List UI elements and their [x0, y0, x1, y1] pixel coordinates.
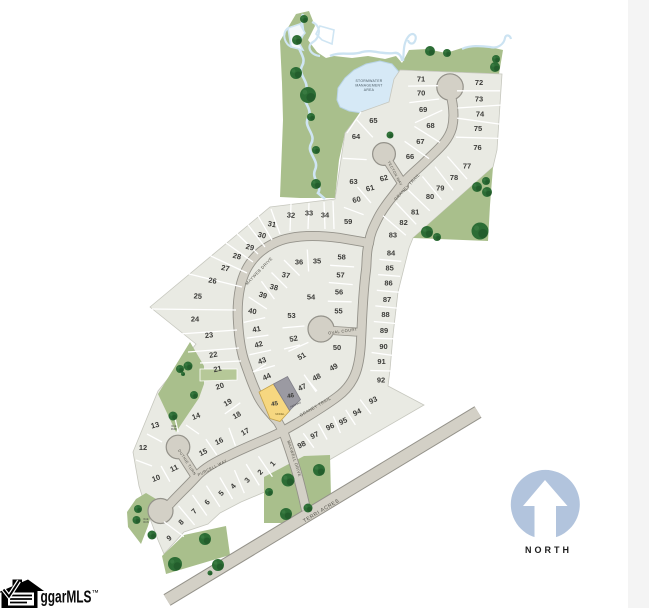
svg-text:54: 54 — [307, 293, 316, 302]
svg-text:80: 80 — [426, 192, 434, 201]
svg-text:79: 79 — [436, 183, 444, 192]
svg-text:35: 35 — [313, 257, 321, 266]
svg-text:69: 69 — [419, 105, 427, 114]
svg-text:23: 23 — [204, 330, 213, 340]
svg-text:STORMWATER: STORMWATER — [355, 79, 382, 83]
svg-text:32: 32 — [286, 210, 295, 220]
svg-text:73: 73 — [475, 95, 483, 104]
svg-text:58: 58 — [338, 253, 346, 262]
svg-text:66: 66 — [406, 152, 414, 161]
svg-text:26: 26 — [208, 276, 218, 286]
svg-text:12: 12 — [139, 443, 147, 452]
svg-text:ggarMLS: ggarMLS — [41, 587, 92, 607]
svg-text:85: 85 — [386, 264, 394, 273]
svg-text:55: 55 — [334, 307, 342, 316]
svg-text:24: 24 — [191, 315, 200, 324]
svg-text:36: 36 — [295, 258, 303, 267]
svg-text:72: 72 — [475, 78, 483, 87]
svg-text:67: 67 — [416, 137, 424, 146]
svg-text:57: 57 — [336, 271, 344, 280]
svg-text:52: 52 — [289, 334, 299, 344]
svg-text:41: 41 — [252, 324, 262, 334]
svg-text:59: 59 — [344, 217, 352, 226]
svg-text:74: 74 — [476, 110, 485, 119]
svg-text:™: ™ — [92, 588, 100, 597]
svg-text:90: 90 — [379, 342, 387, 351]
svg-text:37: 37 — [281, 270, 291, 280]
svg-text:91: 91 — [377, 357, 385, 366]
svg-text:82: 82 — [399, 218, 407, 227]
svg-text:AREA: AREA — [364, 88, 375, 92]
svg-text:22: 22 — [208, 350, 218, 360]
svg-text:53: 53 — [287, 311, 295, 320]
svg-text:63: 63 — [349, 177, 357, 186]
svg-text:84: 84 — [387, 248, 396, 257]
svg-text:81: 81 — [411, 207, 419, 216]
svg-text:89: 89 — [380, 326, 388, 335]
svg-text:78: 78 — [450, 173, 458, 182]
svg-text:33: 33 — [305, 209, 313, 218]
svg-text:68: 68 — [426, 121, 434, 130]
svg-text:31: 31 — [267, 219, 277, 229]
svg-text:40: 40 — [248, 306, 258, 316]
svg-text:65: 65 — [369, 116, 377, 125]
svg-text:83: 83 — [389, 231, 397, 240]
svg-text:MANAGEMENT: MANAGEMENT — [355, 84, 382, 88]
svg-text:PARK: PARK — [171, 428, 178, 431]
svg-text:MODEL: MODEL — [275, 412, 285, 416]
svg-text:56: 56 — [335, 288, 343, 297]
svg-text:34: 34 — [321, 211, 330, 220]
svg-text:NORTH: NORTH — [525, 545, 572, 555]
svg-text:92: 92 — [377, 376, 385, 385]
svg-text:25: 25 — [193, 291, 202, 301]
svg-text:77: 77 — [463, 162, 471, 171]
svg-text:88: 88 — [381, 310, 389, 319]
svg-text:70: 70 — [417, 89, 425, 98]
svg-text:86: 86 — [384, 279, 392, 288]
svg-text:71: 71 — [417, 75, 425, 84]
svg-text:RUN: RUN — [143, 521, 148, 524]
svg-text:87: 87 — [383, 295, 391, 304]
svg-text:64: 64 — [352, 132, 361, 141]
svg-text:50: 50 — [333, 343, 341, 352]
svg-text:76: 76 — [473, 143, 481, 152]
svg-text:75: 75 — [474, 124, 482, 133]
